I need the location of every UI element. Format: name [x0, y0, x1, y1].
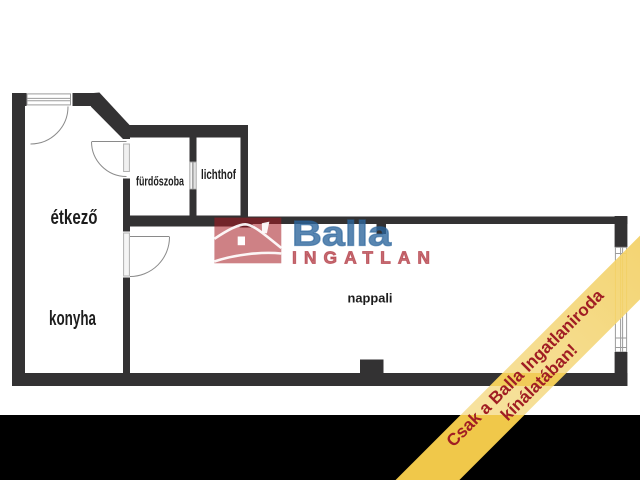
svg-text:fürdőszoba: fürdőszoba — [136, 174, 185, 189]
svg-text:nappali: nappali — [348, 291, 393, 306]
svg-text:étkező: étkező — [51, 207, 98, 229]
svg-text:lichthof: lichthof — [201, 167, 236, 182]
svg-text:konyha: konyha — [49, 308, 97, 330]
